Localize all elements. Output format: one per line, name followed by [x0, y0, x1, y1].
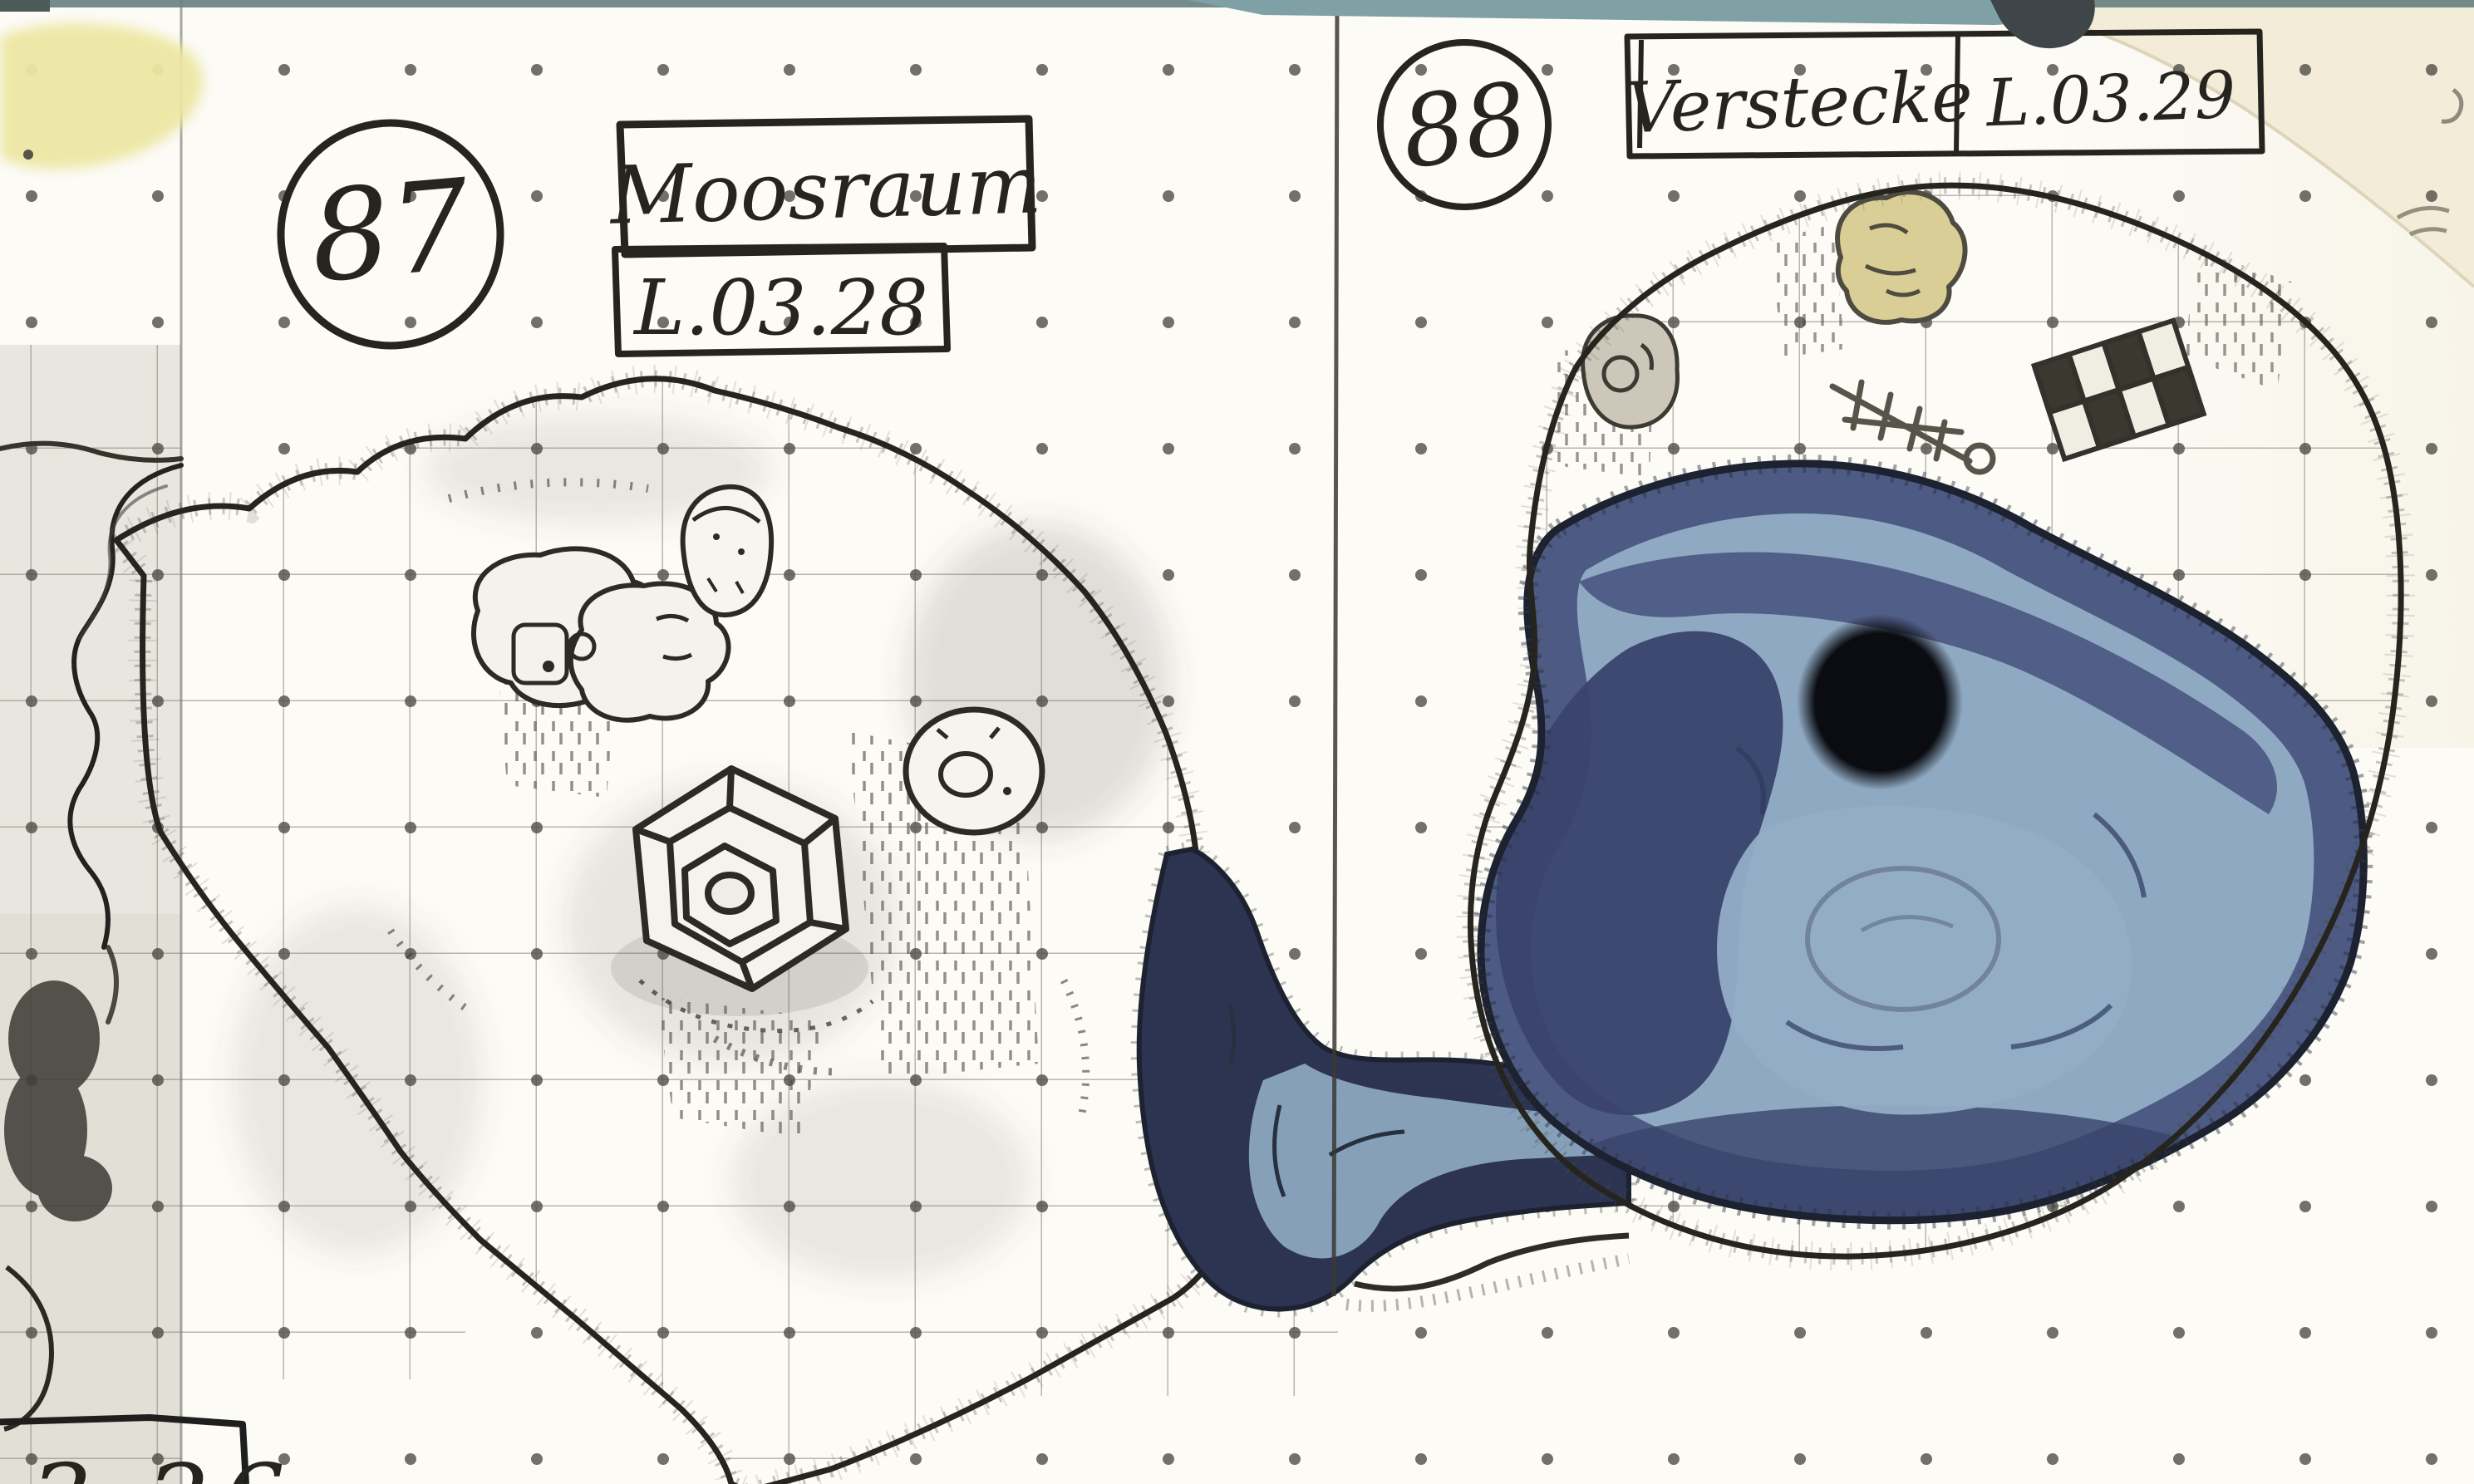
room-88-badge: 88 — [1380, 42, 1548, 207]
dotted-boulder — [683, 487, 772, 615]
room-87-code: L.03.28 — [632, 263, 928, 352]
yellow-boulder — [1837, 192, 1965, 322]
map-canvas: 87 Moosraum L.03.28 88 Verstecke L.03.29… — [0, 0, 2474, 1484]
marker-dot — [23, 150, 33, 160]
sinkhole — [1797, 614, 1963, 790]
room-88-name: Verstecke — [1625, 56, 1974, 149]
partial-label-text: 3.26 — [28, 1444, 297, 1484]
room-88-number: 88 — [1394, 60, 1534, 191]
room-87-name: Moosraum — [607, 138, 1043, 243]
ring-boulder — [906, 710, 1042, 833]
hand-drawn-dungeon-map-photo: 87 Moosraum L.03.28 88 Verstecke L.03.29… — [0, 0, 2474, 1484]
room-87-number: 87 — [305, 153, 476, 311]
room-88-code: L.03.29 — [1984, 58, 2237, 141]
